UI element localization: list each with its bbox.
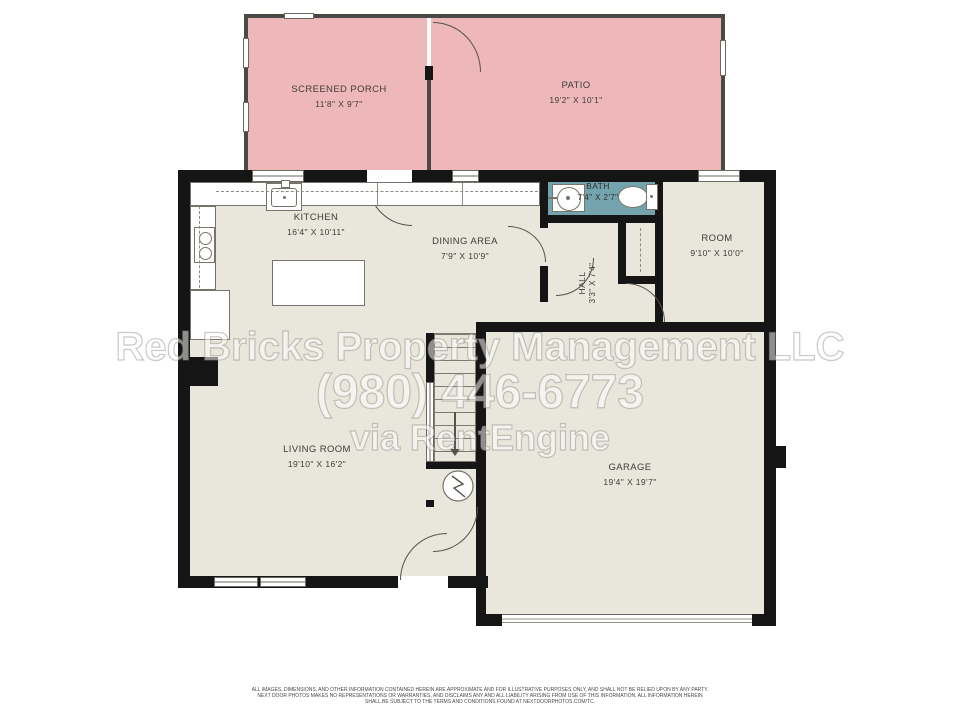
divider-wall-post <box>425 66 433 80</box>
room-name: LIVING ROOM <box>247 444 387 455</box>
room-dims: 7'9" X 10'9" <box>395 251 535 261</box>
room-name: ROOM <box>647 233 787 244</box>
living-room-window <box>214 577 258 587</box>
kitchen-counter-top <box>190 182 540 206</box>
garage-door <box>502 614 752 626</box>
room-label-patio: PATIO 19'2" X 10'1" <box>506 80 646 105</box>
right-wall-post <box>764 446 786 468</box>
room-label-garage: GARAGE 19'4" X 19'7" <box>560 462 700 487</box>
room-name: HALL <box>577 228 587 338</box>
room-dims: 19'2" X 10'1" <box>506 95 646 105</box>
counter-seam <box>377 183 378 205</box>
porch-top-window <box>284 13 314 19</box>
garage-left-wall <box>476 322 486 614</box>
fireplace-block <box>186 357 218 386</box>
living-room-window <box>260 577 306 587</box>
room-label-dining: DINING AREA 7'9" X 10'9" <box>395 236 535 261</box>
room-name: DINING AREA <box>395 236 535 247</box>
sink-drain <box>283 196 286 199</box>
room-label-living-room: LIVING ROOM 19'10" X 16'2" <box>247 444 387 469</box>
room-label-hall: HALL 3'3" X 7'4" <box>577 228 603 338</box>
room-dims: 11'8" X 9'7" <box>269 99 409 109</box>
dining-window <box>452 170 479 182</box>
room-window <box>698 170 740 182</box>
room-name: KITCHEN <box>246 212 386 223</box>
upper-cabinet-dashed-line <box>216 191 538 193</box>
kitchen-island <box>272 260 365 306</box>
stair-arrow-head <box>450 449 460 456</box>
stair-direction-arrow <box>454 412 456 450</box>
floor-plan-page: SCREENED PORCH 11'8" X 9'7" PATIO 19'2" … <box>0 0 960 720</box>
patio-right-window <box>720 40 726 76</box>
room-name: BATH <box>548 181 648 191</box>
kitchen-window <box>252 170 304 182</box>
counter-seam <box>462 183 463 205</box>
hall-right-wall <box>618 223 626 284</box>
disclaimer: ALL IMAGES, DIMENSIONS, AND OTHER INFORM… <box>0 687 960 705</box>
room-label-screened-porch: SCREENED PORCH 11'8" X 9'7" <box>269 84 409 109</box>
room-dims: 19'10" X 16'2" <box>247 459 387 469</box>
room-dims: 3'3" X 7'4" <box>588 228 597 338</box>
closet-dashed-line <box>640 228 642 272</box>
porch-left-window <box>243 38 249 68</box>
room-label-kitchen: KITCHEN 16'4" X 10'11" <box>246 212 386 237</box>
room-name: SCREENED PORCH <box>269 84 409 95</box>
closet-corner <box>426 500 434 507</box>
bath-bottom-wall <box>540 215 663 223</box>
porch-patio-divider-wall <box>427 70 431 170</box>
stair-wall <box>426 333 434 382</box>
fridge-icon <box>190 290 230 340</box>
patio-right-wall <box>721 14 725 170</box>
room-name: PATIO <box>506 80 646 91</box>
room-dims: 19'4" X 19'7" <box>560 477 700 487</box>
room-name: GARAGE <box>560 462 700 473</box>
garage-top-wall <box>476 322 776 332</box>
stair-railing <box>426 382 434 462</box>
porch-door-opening <box>367 170 412 182</box>
water-heater-icon <box>440 468 476 504</box>
porch-patio-top-wall <box>244 14 725 18</box>
hall-left-wall <box>540 266 548 302</box>
upper-cabinet-dashed-line <box>199 206 201 288</box>
room-dims: 16'4" X 10'11" <box>246 227 386 237</box>
toilet-flush-dot <box>650 195 653 198</box>
disclaimer-line: SHALL BE SUBJECT TO THE TERMS AND CONDIT… <box>0 699 960 705</box>
room-dims: 7'4" X 2'7" <box>548 193 648 202</box>
porch-left-window <box>243 102 249 132</box>
room-label-bath: BATH 7'4" X 2'7" <box>548 181 648 202</box>
sink-faucet <box>281 180 290 188</box>
room-label-room: ROOM 9'10" X 10'0" <box>647 233 787 258</box>
room-dims: 9'10" X 10'0" <box>647 248 787 258</box>
